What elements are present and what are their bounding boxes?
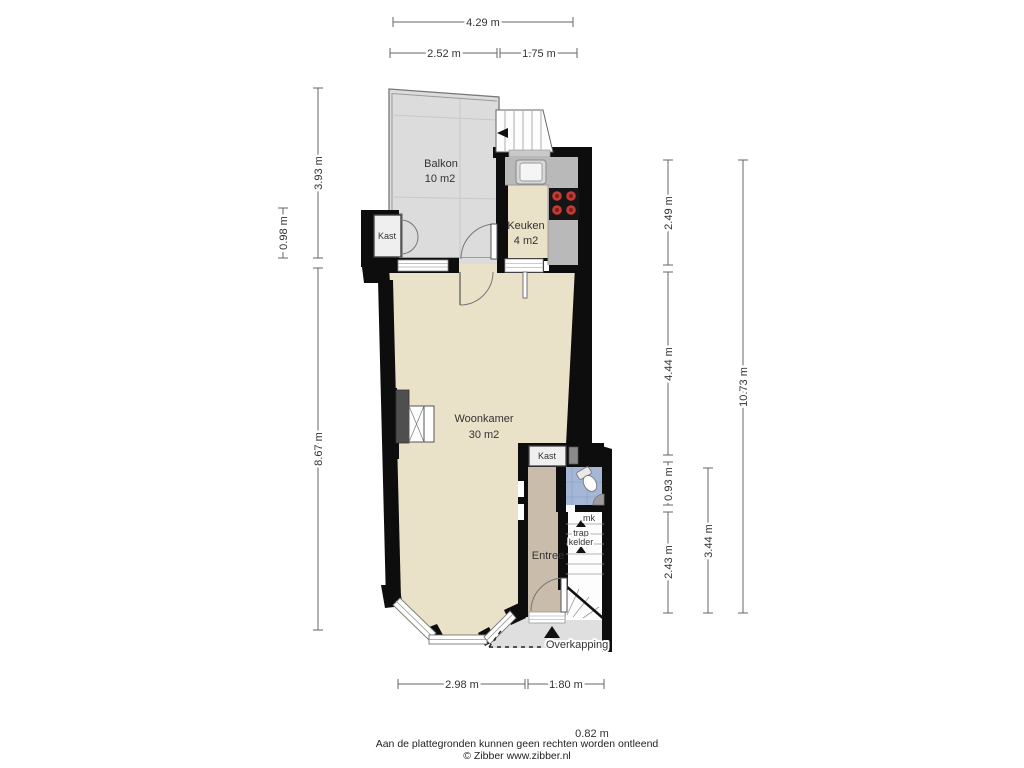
dim-bottom-right: 1.80 m [549,679,583,691]
wall-keuken-right [578,147,592,267]
wall-nook-bump-bottom [385,441,399,459]
dim-top-right: 1.75 m [522,48,556,60]
balkon-area-label: 10 m2 [425,173,456,185]
doorway-balkon-cut-bottom [459,264,497,273]
wall-nook-bump-top [384,388,397,406]
floorplan-page: 4.29 m 2.52 m 1.75 m 2.98 m 1.80 m 0.82 … [0,0,1024,768]
window-balkon-woonkamer [398,260,448,271]
kast-onder-door-slab [569,447,578,464]
voordeur-sill [529,612,565,623]
entree-label: Entree [532,550,564,562]
footer: Aan de plattegronden kunnen geen rechten… [376,738,659,762]
dim-side-woonkamer: 8.67 m [313,432,325,466]
keuken-door-leaf [523,272,527,298]
balkon-label: Balkon [424,158,458,170]
dim-right-total: 10.73 m [738,367,750,407]
kast-boven-label: Kast [378,231,397,241]
woonkamer-area-label: 30 m2 [469,429,500,441]
wall-stairs-left [558,505,568,590]
footer-copyright: © Zibber www.zibber.nl [463,750,571,762]
trap-landing-strip [509,150,550,157]
dim-top-total: 4.29 m [466,17,500,29]
balkon-door-leaf [491,224,497,259]
floorplan-drawing: 4.29 m 2.52 m 1.75 m 2.98 m 1.80 m 0.82 … [0,0,1024,768]
overkapping-label: Overkapping [546,639,608,651]
keuken-label: Keuken [507,220,544,232]
entree-wall-slit-2 [518,504,524,520]
woonkamer-label: Woonkamer [454,413,513,425]
voordeur-leaf [561,578,567,612]
sink-basin [520,163,542,181]
entree-wall-slit-1 [518,481,524,497]
meterkast-label: mk [583,513,595,523]
trapkelder-label-line2: kelder [569,537,594,547]
dim-right-entree: 2.43 m [663,545,675,579]
dim-side-balkon: 3.93 m [313,156,325,190]
toilet-door-gap [566,505,575,512]
nook-white-box [424,406,434,442]
doorway-keuken-sill [505,259,543,272]
kast-onder-label: Kast [538,451,557,461]
wall-entree-left [518,443,528,617]
nook-dark-box [396,390,409,443]
wall-right-outer [602,460,612,652]
keuken-area-label: 4 m2 [514,235,538,247]
footer-disclaimer: Aan de plattegronden kunnen geen rechten… [376,738,659,750]
dim-top-left: 2.52 m [427,48,461,60]
dim-right-hal: 3.44 m [703,524,715,558]
dim-side-kast: 0.98 m [278,216,290,250]
dim-right-woonkamer: 4.44 m [663,347,675,381]
dim-right-kast: 0.93 m [663,467,675,501]
dim-right-keuken: 2.49 m [663,196,675,230]
dim-bottom-left: 2.98 m [445,679,479,691]
